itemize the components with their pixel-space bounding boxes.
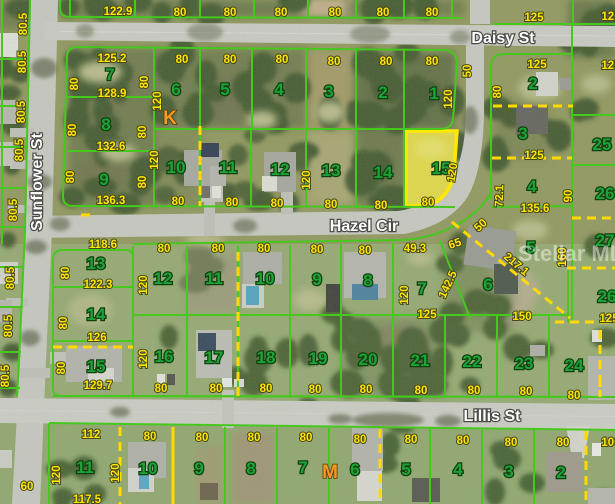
svg-text:24: 24	[565, 356, 584, 375]
svg-text:14: 14	[374, 163, 393, 182]
svg-text:80: 80	[137, 176, 149, 189]
svg-text:9: 9	[312, 270, 321, 289]
svg-text:117.5: 117.5	[73, 494, 102, 504]
svg-text:9: 9	[194, 459, 203, 478]
svg-text:10: 10	[139, 459, 158, 478]
svg-text:80: 80	[415, 385, 428, 397]
svg-text:80: 80	[377, 7, 390, 19]
svg-text:80: 80	[426, 7, 439, 19]
svg-text:80: 80	[325, 199, 338, 211]
svg-text:12: 12	[154, 269, 173, 288]
svg-text:72.1: 72.1	[494, 184, 507, 207]
svg-text:21: 21	[411, 351, 430, 370]
svg-text:1: 1	[429, 84, 438, 103]
svg-text:125: 125	[417, 309, 437, 321]
svg-text:26: 26	[598, 287, 615, 306]
svg-text:8: 8	[101, 115, 110, 134]
svg-text:18: 18	[257, 348, 276, 367]
svg-text:80: 80	[375, 200, 388, 212]
svg-text:23: 23	[515, 354, 534, 373]
svg-text:150: 150	[512, 311, 531, 323]
svg-text:80: 80	[137, 126, 149, 139]
svg-text:11: 11	[219, 158, 237, 177]
svg-text:13: 13	[87, 254, 106, 273]
svg-text:80: 80	[210, 383, 223, 395]
svg-text:125: 125	[524, 150, 544, 162]
svg-text:80: 80	[457, 435, 470, 447]
svg-text:80: 80	[422, 197, 435, 209]
svg-text:5: 5	[401, 460, 410, 479]
svg-text:118.6: 118.6	[89, 239, 117, 251]
svg-text:5: 5	[220, 80, 229, 99]
svg-text:17: 17	[205, 348, 224, 367]
svg-text:80: 80	[174, 7, 187, 19]
svg-text:80: 80	[380, 56, 393, 68]
svg-text:80: 80	[224, 54, 237, 66]
svg-text:8: 8	[246, 459, 255, 478]
svg-text:120: 120	[301, 170, 313, 189]
svg-text:80: 80	[65, 171, 77, 184]
svg-text:80: 80	[56, 362, 68, 375]
svg-text:2: 2	[378, 83, 387, 102]
svg-text:8: 8	[363, 271, 372, 290]
svg-text:9: 9	[99, 170, 108, 189]
svg-text:11: 11	[205, 269, 223, 288]
svg-text:19: 19	[309, 349, 328, 368]
svg-text:80.5: 80.5	[5, 266, 17, 289]
svg-text:80: 80	[360, 384, 373, 396]
svg-text:80.5: 80.5	[3, 314, 15, 337]
svg-text:2: 2	[528, 74, 537, 93]
svg-text:120: 120	[51, 465, 63, 484]
svg-text:7: 7	[298, 458, 307, 477]
svg-text:80: 80	[426, 56, 439, 68]
svg-text:26: 26	[596, 184, 615, 203]
svg-text:7: 7	[105, 65, 114, 84]
svg-text:Lillis St: Lillis St	[464, 408, 522, 425]
svg-text:80: 80	[329, 7, 342, 19]
svg-text:Sunflower St: Sunflower St	[29, 132, 46, 230]
svg-text:80: 80	[260, 383, 273, 395]
svg-text:80: 80	[328, 56, 341, 68]
svg-text:60: 60	[21, 481, 34, 493]
svg-text:125: 125	[599, 313, 615, 325]
svg-text:80: 80	[309, 384, 322, 396]
svg-text:80: 80	[212, 243, 225, 255]
svg-text:120: 120	[152, 91, 164, 110]
svg-text:25: 25	[593, 135, 612, 154]
svg-text:10: 10	[167, 158, 186, 177]
svg-text:80: 80	[505, 437, 518, 449]
svg-text:Daisy St: Daisy St	[471, 30, 535, 47]
svg-text:80: 80	[224, 7, 237, 19]
svg-text:122.9: 122.9	[104, 6, 133, 18]
svg-text:7: 7	[417, 279, 426, 298]
svg-text:90: 90	[563, 190, 575, 203]
svg-text:3: 3	[504, 462, 513, 481]
svg-text:120: 120	[399, 285, 411, 304]
svg-text:3: 3	[518, 124, 527, 143]
svg-text:16: 16	[155, 347, 174, 366]
svg-text:120: 120	[138, 349, 150, 368]
svg-text:125: 125	[601, 60, 615, 72]
svg-text:M: M	[322, 462, 338, 483]
svg-text:80: 80	[172, 196, 185, 208]
svg-text:80.5: 80.5	[17, 50, 29, 73]
svg-text:80: 80	[492, 86, 504, 99]
svg-text:126: 126	[87, 332, 106, 344]
svg-text:100: 100	[601, 437, 615, 449]
svg-text:80: 80	[557, 437, 570, 449]
svg-text:11: 11	[76, 458, 94, 477]
svg-text:80: 80	[271, 198, 284, 210]
svg-text:120: 120	[443, 89, 455, 108]
svg-text:80: 80	[276, 54, 289, 66]
svg-text:6: 6	[483, 275, 492, 294]
svg-text:80: 80	[158, 243, 171, 255]
svg-text:4: 4	[274, 80, 284, 99]
svg-text:125: 125	[524, 12, 544, 24]
svg-text:80: 80	[568, 390, 581, 402]
svg-text:135.6: 135.6	[521, 203, 550, 215]
svg-text:80: 80	[226, 197, 239, 209]
svg-text:125: 125	[601, 11, 615, 23]
svg-text:4: 4	[453, 460, 463, 479]
svg-text:125: 125	[527, 59, 547, 71]
svg-text:80: 80	[69, 78, 81, 91]
svg-text:80: 80	[139, 76, 151, 89]
svg-text:80: 80	[300, 432, 313, 444]
svg-text:125.2: 125.2	[98, 53, 127, 65]
svg-text:80: 80	[354, 434, 367, 446]
svg-text:Hazel Cir: Hazel Cir	[330, 218, 398, 235]
svg-text:2: 2	[556, 463, 565, 482]
svg-text:13: 13	[322, 161, 341, 180]
svg-text:120: 120	[149, 150, 161, 169]
svg-text:80: 80	[155, 383, 168, 395]
svg-text:132.6: 132.6	[97, 141, 126, 153]
svg-text:22: 22	[463, 352, 482, 371]
svg-text:15: 15	[87, 357, 106, 376]
svg-text:122.3: 122.3	[84, 279, 113, 291]
svg-text:80: 80	[468, 385, 481, 397]
svg-text:3: 3	[324, 82, 333, 101]
svg-text:12: 12	[271, 160, 290, 179]
svg-text:K: K	[163, 108, 177, 129]
svg-text:6: 6	[171, 80, 180, 99]
svg-text:80: 80	[144, 431, 157, 443]
svg-text:80: 80	[275, 7, 288, 19]
svg-text:80: 80	[359, 245, 372, 257]
svg-text:80: 80	[520, 386, 533, 398]
svg-text:80: 80	[67, 124, 79, 137]
svg-text:80.5: 80.5	[14, 138, 26, 161]
svg-text:80.5: 80.5	[8, 198, 20, 221]
svg-text:112: 112	[82, 429, 101, 441]
svg-text:80: 80	[60, 267, 72, 280]
svg-text:129.7: 129.7	[84, 380, 113, 392]
svg-text:80: 80	[405, 434, 418, 446]
svg-text:6: 6	[350, 460, 359, 479]
svg-text:80: 80	[176, 54, 189, 66]
svg-text:80: 80	[248, 432, 261, 444]
svg-text:80: 80	[258, 243, 271, 255]
svg-text:80.5: 80.5	[0, 364, 12, 387]
svg-text:80.5: 80.5	[18, 12, 30, 35]
svg-text:Stellar MLS: Stellar MLS	[518, 241, 615, 266]
svg-text:50: 50	[462, 65, 474, 78]
svg-text:49.3: 49.3	[404, 243, 426, 255]
svg-text:80: 80	[196, 432, 209, 444]
svg-text:80: 80	[58, 317, 70, 330]
svg-text:14: 14	[87, 305, 106, 324]
svg-text:136.3: 136.3	[97, 195, 126, 207]
svg-text:80: 80	[311, 244, 324, 256]
svg-text:20: 20	[359, 350, 378, 369]
svg-text:128.9: 128.9	[98, 88, 127, 100]
svg-text:120: 120	[110, 463, 122, 482]
svg-text:10: 10	[256, 269, 275, 288]
svg-text:80.5: 80.5	[16, 100, 28, 123]
svg-text:120: 120	[138, 275, 150, 294]
svg-text:4: 4	[527, 177, 537, 196]
